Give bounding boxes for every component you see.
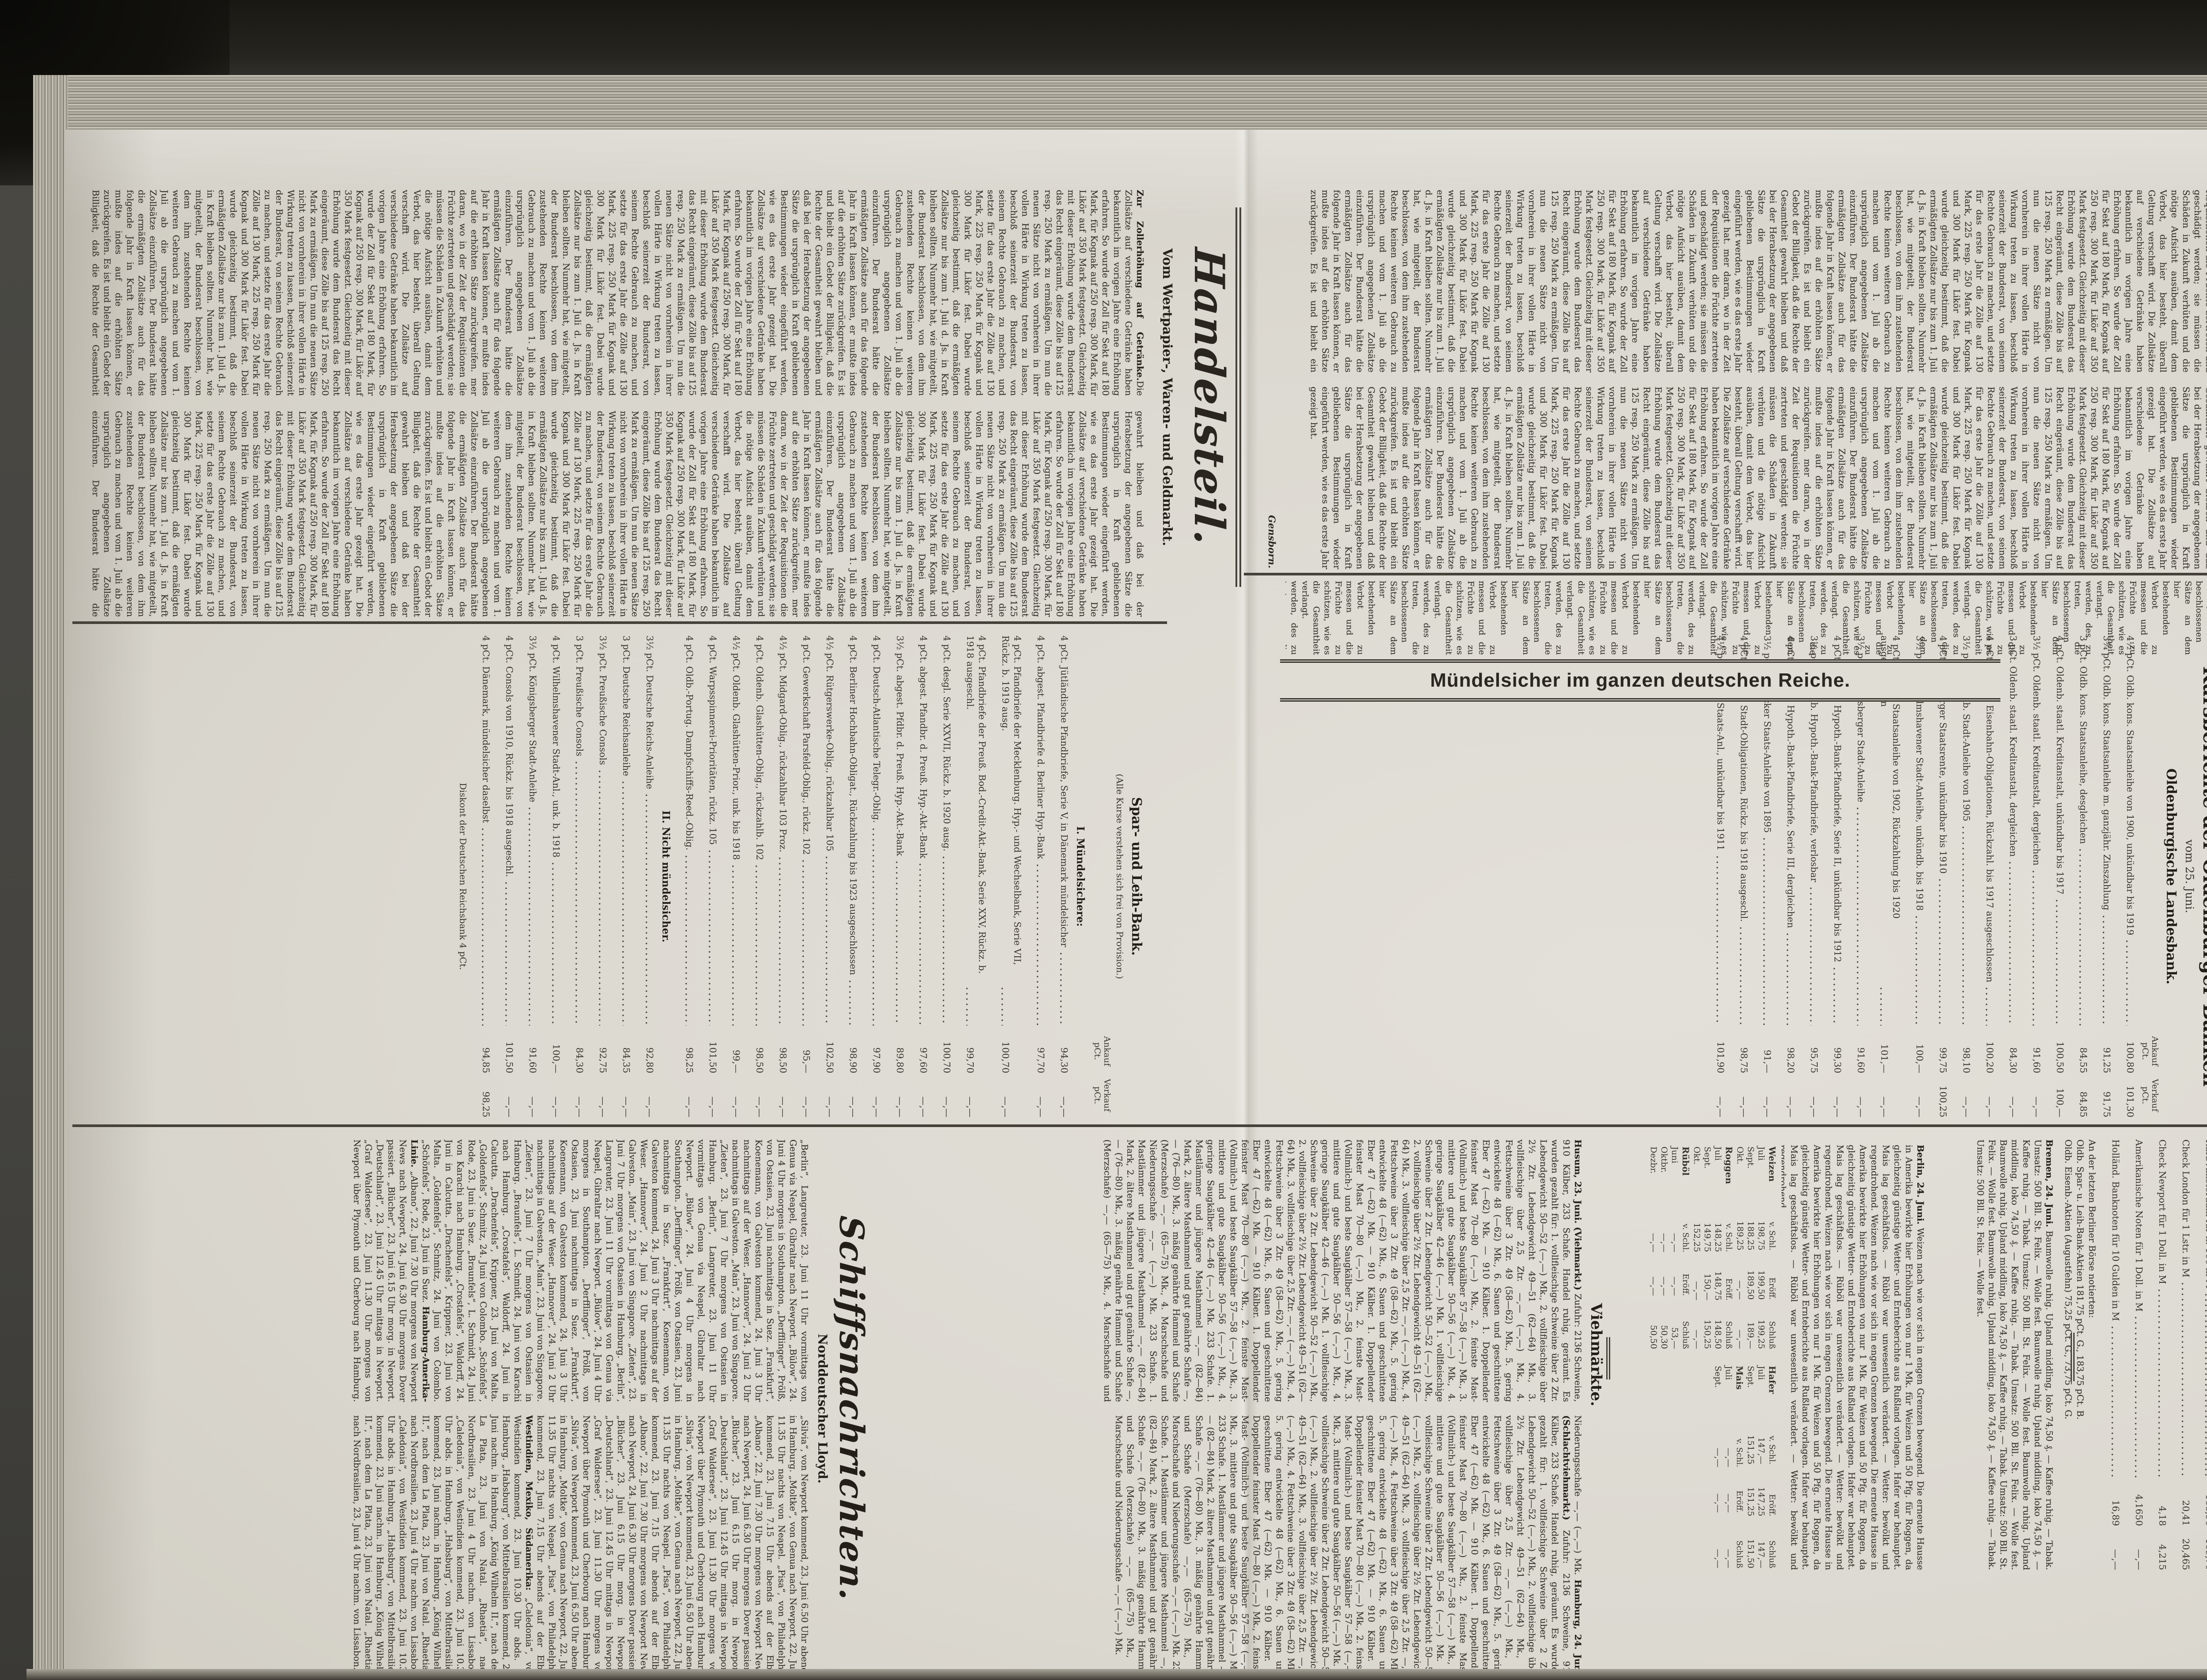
underlying-page-edge	[26, 1669, 2207, 1680]
ship-news: „Berlin“, Langreuter, 23. Juni 11 Uhr vo…	[74, 1139, 810, 1678]
ad-strip: Mündelsicher im ganzen deutschen Reiche.	[1280, 659, 2000, 702]
table-row: 3½ pCt. abgest. Pfdbr. d. Preuß. Hyp.-Ak…	[894, 635, 906, 1117]
table-row: 3½ pCt. Oldenb. Stadt-Anleihe von 190598…	[1960, 635, 1972, 1117]
table-row: 4 pCt. Pfandbriefe der Preuß. Bod.-Credi…	[964, 635, 988, 1117]
table-row: 4 pCt. Bremer Staatsanleihe von 1902, Rü…	[1878, 635, 1902, 1117]
landesbank-rows: 4½ pCt. Oldb. kons. Staatsanleihe von 19…	[1714, 635, 2136, 1117]
handelsteil-subtitle: Vom Wertpapier-, Waren- und Geldmarkt.	[1160, 207, 1175, 587]
article-lead: Zur Zollerhöhung auf Getränke.	[1135, 190, 1145, 381]
table-row: 4 pCt. Dänemark, mündelsicher daselbst94…	[480, 635, 492, 1117]
table-row: 3 pCt. Deutsche Reichsanleihe84,35—,—	[620, 635, 632, 1117]
table-row: 4 pCt. abgest. Pfandbriefe d. Berliner H…	[1035, 635, 1047, 1117]
table-row: 3 pCt. Oldenb. staatl. Kreditanstalt, de…	[2007, 635, 2019, 1117]
rotated-newspaper-page: 1244 mer daran, wo in der Zeit der Requi…	[33, 19, 2207, 1680]
group2-heading: II. Nicht mündelsicher.	[660, 635, 672, 1117]
table-row: 4 pCt. Oldenb. Hypoth.-Bank-Pfandbriefe,…	[1785, 635, 1796, 1117]
table-row: 3½ pCt. Oldenb. Hypoth.-Bank-Pfandbriefe…	[1808, 635, 1820, 1117]
table-row: 3¾ pCt. Oldb. kons. Staatsanleihe m. gan…	[2101, 635, 2113, 1117]
table-row: 4 pCt. Hamburger Staatsrente, unkündbar …	[1937, 635, 1949, 1117]
table-row: Check London für 1 Lstr. in M20,4120,465	[2180, 1139, 2192, 1570]
livestock-reports: Husum, 23. Juni. (Viehmarkt.) Zufuhr: 21…	[878, 1139, 1584, 1678]
table-row: 4 pCt. Oldenb. Hypoth.-Bank-Pfandbriefe,…	[1831, 635, 1843, 1117]
section-rule	[1235, 207, 1241, 587]
kursberichte-table: Kursberichte der Oldenburger Banken vom …	[1171, 635, 2207, 1117]
vieh-divider	[1606, 1337, 1610, 1379]
table-row: 4 pCt. Oldenb. Stadt-Obligationen, Rückz…	[1738, 635, 1750, 1117]
schiffsnachrichten-title: Schiffsnachrichten.	[832, 1138, 871, 1679]
table-row: 3½ pCt. Preußische Consols92,75—,—	[597, 635, 609, 1117]
price-column-headers: AnkaufpCt. VerkaufpCt.	[2140, 635, 2160, 1117]
sparleih-name: Spar- und Leih-Bank.	[1129, 635, 1144, 1117]
viehmaerkte-title: Viehmärkte.	[1587, 1139, 1605, 1570]
table-row: 3½ pCt. Lübecker Staats-Anleihe von 1895…	[1761, 635, 1773, 1117]
boerse-lines: An der letzten Berliner Börse notierten:…	[2062, 1139, 2098, 1570]
sparleih-rows-2: 3½ pCt. Deutsche Reichs-Anleihe92,80—,—3…	[480, 635, 655, 1117]
table-row: 3 pCt. Oldb. kons. Staatsanleihe, desgle…	[2077, 635, 2089, 1117]
table-row: Kurz Amsterdam für fl. 100 in M168,90169…	[2203, 1139, 2207, 1570]
table-row: 4½ pCt. Oldb. kons. Staatsanleihe von 19…	[2124, 635, 2136, 1117]
table-row: 4 pCt. Pfandbriefe der Mecklenburg. Hyp.…	[999, 635, 1023, 1117]
table-row: 3 pCt. Preußische Consols84,30—,—	[573, 635, 585, 1117]
table-row: 4 pCt. desgl. Serie XXVII, Rückz. b. 192…	[941, 635, 953, 1117]
table-row: 4 pCt. Warpsspinnerei-Prioritäten, rückz…	[707, 635, 719, 1117]
column-rule-lower	[72, 621, 1167, 624]
table-row: 4 pCt. Jütländische Pfandbriefe, Serie V…	[1058, 635, 1070, 1117]
table-row: Holländ. Banknoten für 10 Gulden in M16,…	[2109, 1139, 2121, 1570]
table-row: 4 pCt. Oldenb. Glashütten-Oblig., rückza…	[753, 635, 765, 1117]
sparleih-rows-1: 4 pCt. Jütländische Pfandbriefe, Serie V…	[683, 635, 1070, 1117]
handelsteil-article: Zur Zollerhöhung auf Getränke.Die Zollsä…	[87, 190, 1146, 617]
lloyd-subtitle: Norddeutscher Lloyd.	[815, 1139, 830, 1678]
table-row: 4 pCt. Oldenb. Eisenbahn-Obligationen, R…	[1984, 635, 1996, 1117]
price-column-headers-2: AnkaufpCt. VerkaufpCt.	[1092, 635, 1112, 1117]
page-stack-edge-left	[33, 75, 2207, 132]
table-row: 3½ pCt. Königsberger Stadt-Anleihe91,60—…	[1855, 635, 1867, 1117]
bremen-report: Bremen, 24. Juni. Baumwolle ruhig. Uplan…	[1933, 1139, 2055, 1570]
section-divider	[2071, 1333, 2075, 1381]
table-row: 3½ pCt. Deutsche Reichs-Anleihe92,80—,—	[644, 635, 655, 1117]
table-row: 4 pCt. Wilhelmshavener Stadt-Anl., unk. …	[550, 635, 562, 1117]
table-row: Check Newport für 1 Doll. in M4,184,215	[2156, 1139, 2168, 1570]
westindien-heading: Westindien, Mexiko, Südamerika:	[524, 1415, 535, 1590]
table-row: 4½ pCt. Midgard-Oblig., rückzahlbar 103 …	[777, 635, 789, 1117]
futures-table-rüböl: Rübölv. Schl.Eröff.SchlußJuni—,——,—53,—O…	[1648, 1145, 1691, 1351]
table-row: 3½ pCt. Königsberger Stadt-Anleihe91,60—…	[527, 635, 539, 1117]
scanned-newspaper-photo: 1244 mer daran, wo in der Zeit der Requi…	[0, 0, 2207, 1680]
handelsteil-title: Handelsteil.	[1185, 206, 1233, 589]
table-row: 4½ pCt. Rütgerswerke-Oblig., rückzahlbar…	[824, 635, 836, 1117]
futures-table-hafer: Haferv. Schl.Eröff.SchlußJuli147,—147,25…	[1745, 1364, 1778, 1570]
futures-table-roggen: Roggenv. Schl.Eröff.SchlußJuli148,25148,…	[1691, 1145, 1735, 1351]
sparleih-note: (Alle Kurse verstehen sich frei von Prov…	[1115, 635, 1125, 1117]
discount-note: Diskont der Deutschen Reichsbank 4 pCt.	[458, 635, 468, 1117]
table-row: 4 pCt. Oldb.-Portug. Dampfschiffs-Reed.-…	[683, 635, 695, 1117]
table-row: 4 pCt. Consols von 1910, Rückz. bis 1918…	[503, 635, 515, 1117]
table-row: 3½ pCt. Wilhelmshavener Stadt-Anleihe, u…	[1913, 635, 1925, 1117]
table-row: 4½ pCt. Oldenb. Glashütten-Prior., unk. …	[730, 635, 742, 1117]
sparleih-table: Spar- und Leih-Bank. (Alle Kurse versteh…	[85, 635, 1144, 1117]
article-signature: Gensborn.	[1266, 398, 1277, 568]
column-rule-upper	[1244, 573, 2207, 575]
table-row: 4 pCt. Oldenb. staatl. Kreditanstalt, un…	[2054, 635, 2066, 1117]
page-stack-edge-bottom	[33, 75, 68, 1680]
futures-table-weizen: Weizenv. Schl.Eröff.SchlußJuli198,75199,…	[1735, 1145, 1778, 1351]
kursberichte-date: vom 25. Juni.	[2183, 635, 2196, 1117]
futures-tables: Weizenv. Schl.Eröff.SchlußJuli198,75199,…	[1614, 1145, 1778, 1570]
exchange-rows: Kurz Amsterdam für fl. 100 in M168,90169…	[2109, 1139, 2207, 1570]
berlin-grain-report: Berlin, 24. Juni. Weizen nach wie vor si…	[1781, 1145, 1926, 1570]
table-row: 4½ pCt. Oldb. Staats-Anl., unkündbar bis…	[1714, 635, 1726, 1117]
table-row: 4 pCt. Deutsch-Atlantische Telegr.-Oblig…	[870, 635, 882, 1117]
kursberichte-title: Kursberichte der Oldenburger Banken	[2199, 635, 2207, 1117]
group1-heading: I. Mündelsichere:	[1074, 635, 1086, 1117]
table-row: 4 pCt. Gewerkschaft Parsfeld-Oblig., rüc…	[800, 635, 812, 1117]
ad-banner-text: Mündelsicher im ganzen deutschen Reiche.	[1280, 663, 2000, 698]
exchange-table: Kurz Amsterdam für fl. 100 in M168,90169…	[2062, 1139, 2207, 1570]
table-row: 3½ pCt. Oldenb. staatl. Kreditanstalt, d…	[2030, 635, 2042, 1117]
table-row: 4 pCt. Berliner Hochbahn-Obligat., Rückz…	[847, 635, 859, 1117]
landesbank-name: Oldenburgische Landesbank.	[2163, 635, 2179, 1117]
column-rule-right	[72, 1124, 2207, 1127]
article-end-columns: mer daran, wo in der Zeit der Requisitio…	[1282, 190, 2207, 569]
table-row: Amerikanische Noten für 1 Doll. in M4,16…	[2133, 1139, 2145, 1570]
table-row: 4 pCt. abgest. Pfandbr. d. Preuß. Hyp.-A…	[917, 635, 929, 1117]
futures-table-mais: Maisv. Schl.Eröff.SchlußJuli—,——,——,—Sep…	[1713, 1364, 1745, 1570]
